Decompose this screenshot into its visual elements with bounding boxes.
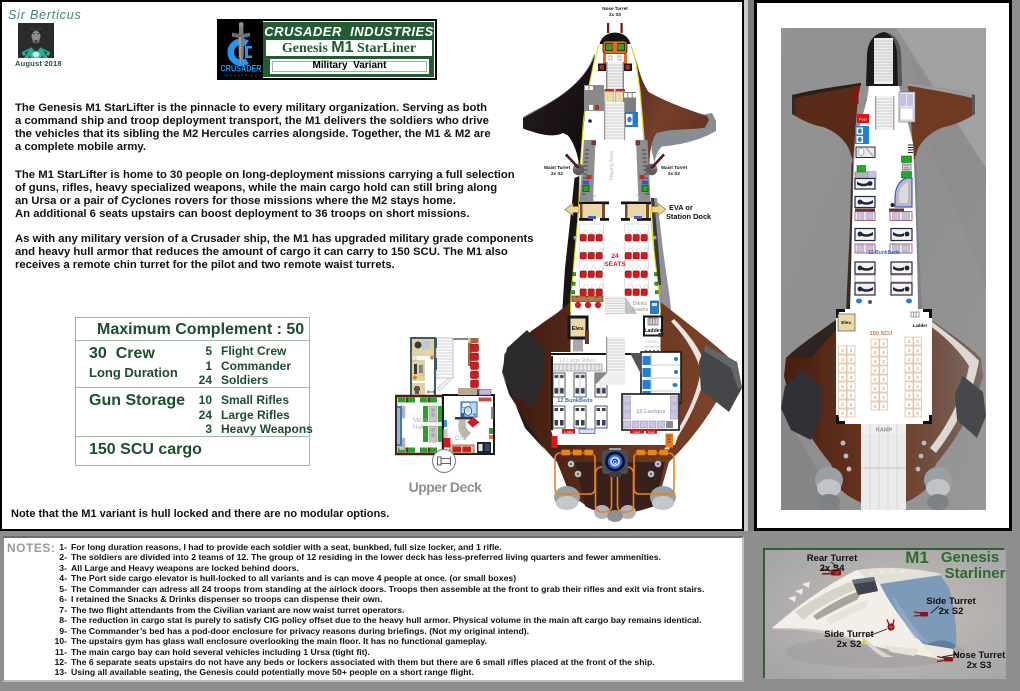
svg-text:Genesis: Genesis <box>941 550 999 566</box>
svg-text:INDUSTRIES: INDUSTRIES <box>224 74 259 78</box>
svg-text:L-Shld: L-Shld <box>564 430 573 434</box>
svg-text:2x S2: 2x S2 <box>551 171 563 176</box>
svg-text:12 Large Rifles: 12 Large Rifles <box>559 358 596 364</box>
svg-text:2x S4: 2x S4 <box>820 563 846 574</box>
svg-text:Ops: Ops <box>638 198 645 202</box>
svg-text:Fuel: Fuel <box>859 117 867 122</box>
svg-text:Elev.: Elev. <box>572 326 585 332</box>
svg-text:Station Dock: Station Dock <box>666 212 712 221</box>
svg-text:Hall: Hall <box>413 425 423 431</box>
svg-text:C/O: C/O <box>455 435 467 442</box>
svg-text:Cool.: Cool. <box>633 430 640 434</box>
svg-text:12 BunkBeds: 12 BunkBeds <box>868 250 900 256</box>
svg-text:Gym: Gym <box>420 364 426 377</box>
svg-text:G: G <box>613 460 617 466</box>
svg-text:Mess: Mess <box>413 418 427 424</box>
svg-text:EVA or: EVA or <box>669 203 693 212</box>
svg-text:2x S2: 2x S2 <box>837 639 862 650</box>
svg-text:Ladder: Ladder <box>644 328 661 334</box>
svg-text:M1: M1 <box>905 550 929 567</box>
svg-text:Staging Area: Staging Area <box>609 151 615 181</box>
svg-text:Ladder: Ladder <box>913 323 928 328</box>
svg-text:150 SCU: 150 SCU <box>870 331 893 337</box>
svg-text:Elev.: Elev. <box>841 320 851 325</box>
svg-text:Snacks: Snacks <box>632 307 649 313</box>
svg-text:RAMP: RAMP <box>876 428 893 434</box>
svg-text:Ops: Ops <box>588 198 595 202</box>
svg-text:12 BunkBeds: 12 BunkBeds <box>557 398 592 404</box>
svg-text:SEATS: SEATS <box>604 261 626 268</box>
svg-text:Waist Turret: Waist Turret <box>661 165 688 170</box>
svg-text:12 Lockers: 12 Lockers <box>636 409 665 415</box>
svg-text:Nose Turret: Nose Turret <box>602 6 628 11</box>
svg-text:2x S2: 2x S2 <box>939 606 964 617</box>
svg-text:weapon: weapon <box>644 344 661 349</box>
svg-text:Starliner: Starliner <box>945 565 1006 582</box>
svg-text:2x S3: 2x S3 <box>609 12 621 17</box>
svg-text:2x S2: 2x S2 <box>668 171 680 176</box>
svg-text:Waist Turret: Waist Turret <box>544 165 571 170</box>
svg-text:Cool.: Cool. <box>648 430 655 434</box>
svg-text:24: 24 <box>611 253 619 260</box>
svg-text:2x S3: 2x S3 <box>967 660 992 671</box>
